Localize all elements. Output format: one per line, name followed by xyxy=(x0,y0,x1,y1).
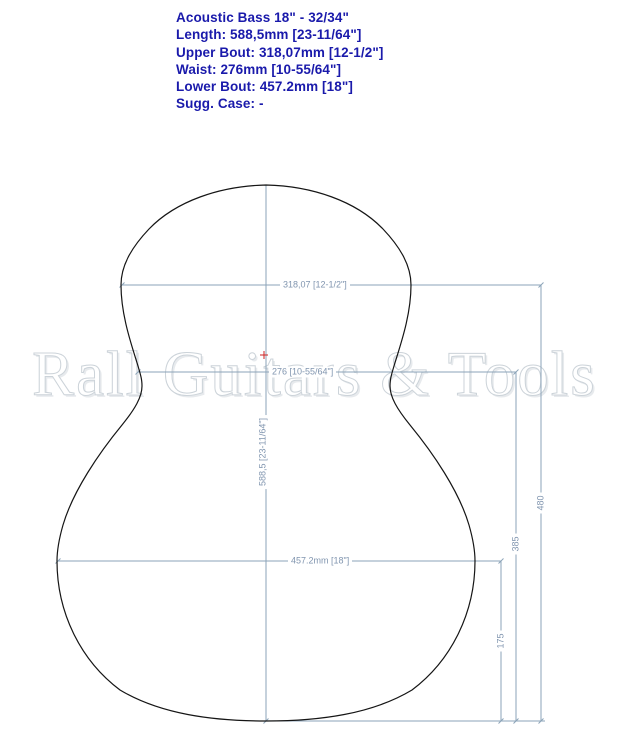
drawing-page: Rall Guitars & Tools Acoustic Bass 18" -… xyxy=(0,0,629,747)
waist-dim-label: 276 [10-55/64"] xyxy=(269,367,336,378)
lower-bout-dim-label: 457.2mm [18"] xyxy=(288,556,352,567)
length-dim-label: 588,5 [23-11/64"] xyxy=(258,415,269,489)
dimension-ticks xyxy=(56,283,544,724)
height-385-dim-label: 385 xyxy=(511,533,522,554)
height-175-dim-label: 175 xyxy=(496,630,507,651)
upper-bout-dim-label: 318,07 [12-1/2"] xyxy=(280,280,350,291)
dimension-lines xyxy=(58,185,545,721)
center-marker xyxy=(260,351,268,359)
height-480-dim-label: 480 xyxy=(536,492,547,513)
